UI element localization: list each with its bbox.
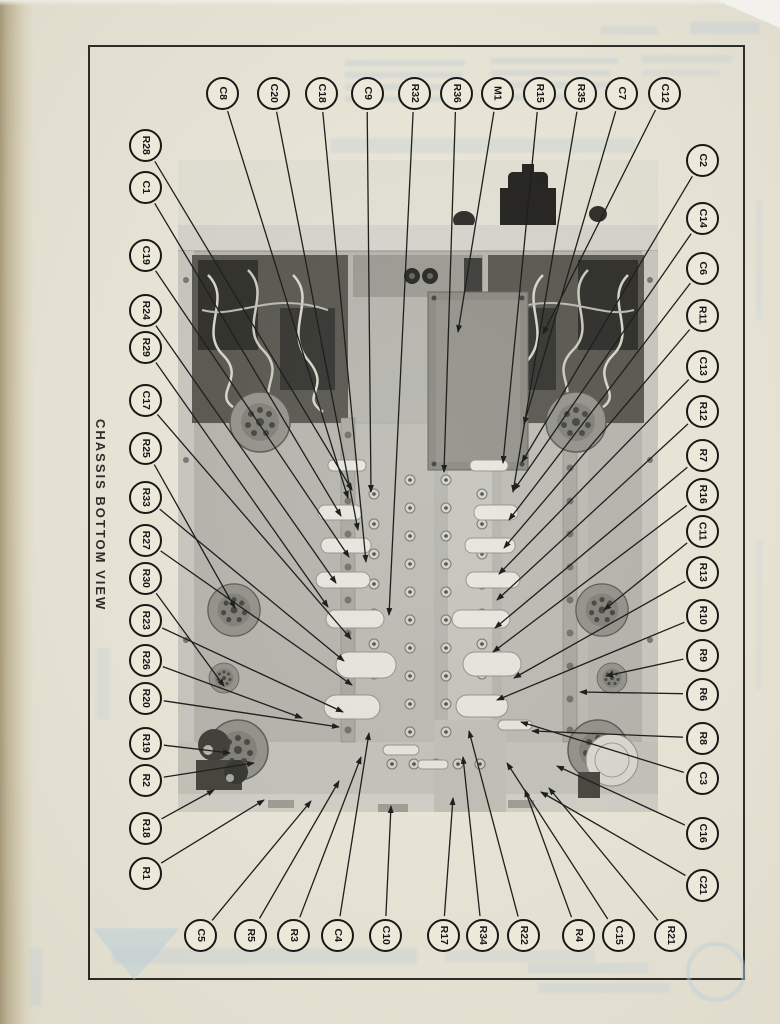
callout-r2: R2	[129, 764, 162, 797]
callout-label-r29: R29	[140, 338, 151, 357]
callout-label-c21: C21	[697, 876, 708, 895]
callout-label-r12: R12	[697, 402, 708, 421]
callout-label-c17: C17	[140, 391, 151, 410]
callout-c5: C5	[184, 919, 217, 952]
callout-r25: R25	[129, 432, 162, 465]
scanned-manual-page: CHASSIS BOTTOM VIEW	[0, 0, 780, 1024]
callout-r6: R6	[686, 678, 719, 711]
callout-label-r24: R24	[140, 301, 151, 320]
callout-r12: R12	[686, 395, 719, 428]
callout-c15: C15	[602, 919, 635, 952]
callout-r19: R19	[129, 727, 162, 760]
callout-label-r15: R15	[534, 84, 545, 103]
callout-c14: C14	[686, 202, 719, 235]
callout-r13: R13	[686, 556, 719, 589]
callout-label-r34: R34	[477, 926, 488, 945]
callout-label-c9: C9	[362, 87, 373, 100]
callout-label-c2: C2	[697, 154, 708, 167]
callout-label-r5: R5	[245, 929, 256, 942]
callout-r33: R33	[129, 481, 162, 514]
callout-r9: R9	[686, 639, 719, 672]
callout-label-r16: R16	[697, 485, 708, 504]
callout-label-r13: R13	[697, 563, 708, 582]
callout-c19: C19	[129, 239, 162, 272]
callout-label-c20: C20	[268, 84, 279, 103]
callout-r10: R10	[686, 599, 719, 632]
callout-c4: C4	[321, 919, 354, 952]
callout-label-c10: C10	[380, 926, 391, 945]
callout-label-r11: R11	[697, 306, 708, 325]
callout-r24: R24	[129, 294, 162, 327]
callout-label-c6: C6	[697, 262, 708, 275]
callout-label-r19: R19	[140, 734, 151, 753]
callout-r1: R1	[129, 857, 162, 890]
callout-label-r22: R22	[518, 926, 529, 945]
callout-label-r10: R10	[697, 606, 708, 625]
callout-c6: C6	[686, 252, 719, 285]
callout-label-r3: R3	[288, 929, 299, 942]
callout-r26: R26	[129, 644, 162, 677]
callout-label-r36: R36	[451, 84, 462, 103]
callout-c21: C21	[686, 869, 719, 902]
callout-r35: R35	[564, 77, 597, 110]
callout-r17: R17	[427, 919, 460, 952]
callout-r4: R4	[562, 919, 595, 952]
callout-label-r1: R1	[140, 867, 151, 880]
callout-r7: R7	[686, 439, 719, 472]
callout-label-c19: C19	[140, 246, 151, 265]
callout-label-r9: R9	[697, 649, 708, 662]
callout-label-r2: R2	[140, 774, 151, 787]
callout-r23: R23	[129, 604, 162, 637]
callout-r18: R18	[129, 812, 162, 845]
callout-c7: C7	[605, 77, 638, 110]
callout-c13: C13	[686, 350, 719, 383]
callout-c3: C3	[686, 762, 719, 795]
callout-c10: C10	[369, 919, 402, 952]
callout-label-r35: R35	[575, 84, 586, 103]
callout-r21: R21	[654, 919, 687, 952]
callout-c2: C2	[686, 144, 719, 177]
callout-label-r21: R21	[665, 926, 676, 945]
callout-label-r4: R4	[573, 929, 584, 942]
callout-label-r26: R26	[140, 651, 151, 670]
callout-label-c5: C5	[195, 929, 206, 942]
callout-label-r33: R33	[140, 488, 151, 507]
callout-r34: R34	[466, 919, 499, 952]
callout-r20: R20	[129, 682, 162, 715]
callout-r15: R15	[523, 77, 556, 110]
callout-c16: C16	[686, 817, 719, 850]
callout-label-r20: R20	[140, 689, 151, 708]
callout-r11: R11	[686, 299, 719, 332]
callout-r30: R30	[129, 562, 162, 595]
callout-r16: R16	[686, 478, 719, 511]
callout-r28: R28	[129, 129, 162, 162]
callout-label-c12: C12	[659, 84, 670, 103]
callout-label-r8: R8	[697, 732, 708, 745]
callout-c12: C12	[648, 77, 681, 110]
callout-label-r27: R27	[140, 531, 151, 550]
callout-r5: R5	[234, 919, 267, 952]
callout-c18: C18	[305, 77, 338, 110]
callout-label-c18: C18	[316, 84, 327, 103]
callout-label-r7: R7	[697, 449, 708, 462]
callout-label-c13: C13	[697, 357, 708, 376]
callout-label-r17: R17	[438, 926, 449, 945]
callout-label-c16: C16	[697, 824, 708, 843]
callout-c8: C8	[206, 77, 239, 110]
callout-c20: C20	[257, 77, 290, 110]
callout-label-r25: R25	[140, 439, 151, 458]
callout-c9: C9	[351, 77, 384, 110]
callout-c17: C17	[129, 384, 162, 417]
callout-layer: C8C20C18C9R32R36M1R15R35C7C12C2C14C6R11C…	[0, 0, 780, 1024]
callout-m1: M1	[481, 77, 514, 110]
callout-label-r30: R30	[140, 569, 151, 588]
callout-label-c7: C7	[616, 87, 627, 100]
callout-label-c14: C14	[697, 209, 708, 228]
callout-r8: R8	[686, 722, 719, 755]
callout-c1: C1	[129, 171, 162, 204]
callout-label-c15: C15	[613, 926, 624, 945]
callout-r32: R32	[398, 77, 431, 110]
callout-label-r18: R18	[140, 819, 151, 838]
callout-label-m1: M1	[492, 86, 503, 101]
callout-r29: R29	[129, 331, 162, 364]
callout-c11: C11	[686, 515, 719, 548]
callout-r27: R27	[129, 524, 162, 557]
callout-label-c11: C11	[697, 522, 708, 541]
callout-r3: R3	[277, 919, 310, 952]
callout-label-r32: R32	[409, 84, 420, 103]
callout-label-r6: R6	[697, 688, 708, 701]
callout-label-c8: C8	[217, 87, 228, 100]
callout-r22: R22	[507, 919, 540, 952]
callout-r36: R36	[440, 77, 473, 110]
callout-label-c1: C1	[140, 181, 151, 194]
callout-label-c4: C4	[332, 929, 343, 942]
callout-label-r28: R28	[140, 136, 151, 155]
callout-label-r23: R23	[140, 611, 151, 630]
callout-label-c3: C3	[697, 772, 708, 785]
